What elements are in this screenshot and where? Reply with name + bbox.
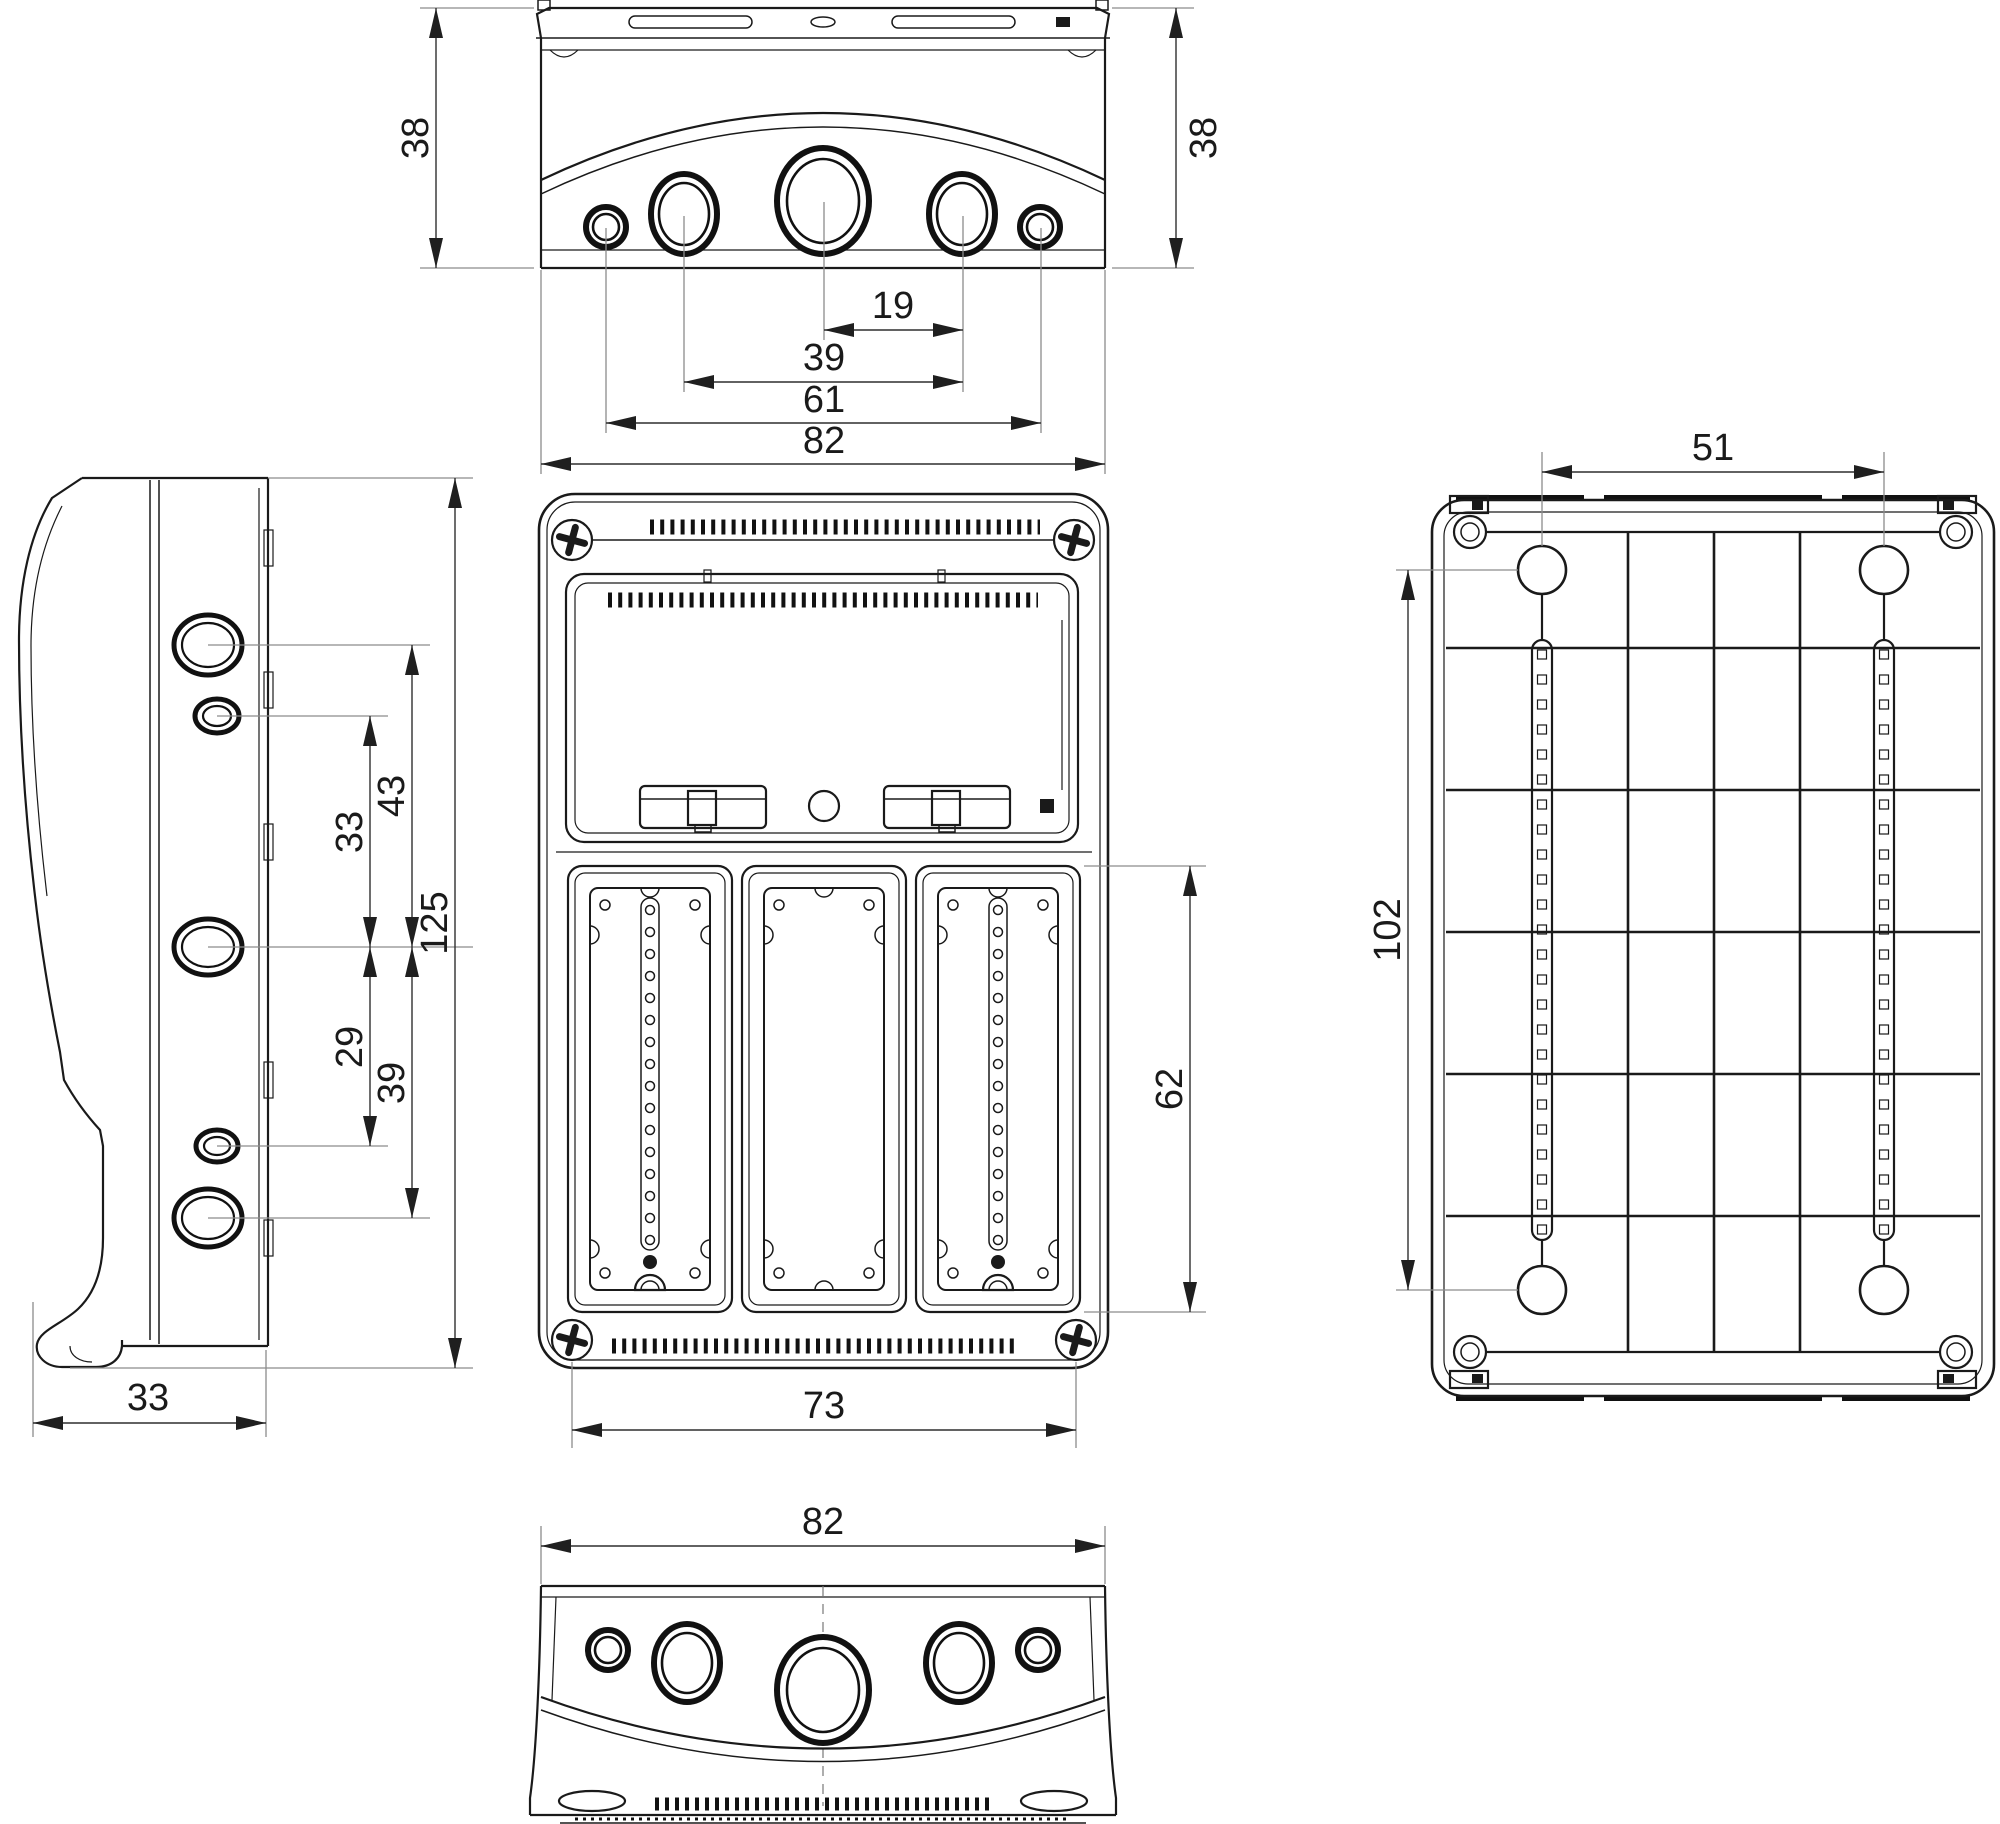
- knockout-large-center: [777, 1637, 869, 1743]
- side-knockouts: [174, 615, 242, 1247]
- corner-fixing-top-left: [1450, 496, 1488, 548]
- dim-label: 39: [371, 1062, 413, 1104]
- dim-label: 82: [803, 420, 845, 462]
- enclosure-dimension-drawing: 38 38 19 39: [0, 0, 2000, 1824]
- dim-top-height-right: 38: [1112, 8, 1225, 268]
- dim-label: 39: [803, 337, 845, 379]
- dim-label: 19: [872, 285, 914, 327]
- dim-label: 38: [1183, 117, 1225, 159]
- front-view: 62 73: [539, 494, 1206, 1448]
- front-view-body: [539, 494, 1108, 1368]
- mounting-grid: [1446, 532, 1980, 1352]
- back-view: 51 102: [1367, 427, 1994, 1398]
- technical-drawing-page: 38 38 19 39: [0, 0, 2000, 1824]
- latch-left: [640, 786, 766, 832]
- keyhole-chain-left: [1518, 546, 1566, 1314]
- dim-label: 62: [1149, 1068, 1191, 1110]
- lid-slot-left: [629, 16, 752, 28]
- cover-screw-bottom-right: [1056, 1320, 1096, 1360]
- knockout-large-center: [777, 148, 869, 254]
- dim-front-cutout-height: 62: [1084, 866, 1206, 1312]
- cover-screw-top-right: [1054, 520, 1094, 560]
- dim-back-hole-span-vertical: 102: [1367, 570, 1518, 1290]
- lid-latch-detail: [1056, 17, 1070, 27]
- din-chain-left: [635, 898, 665, 1290]
- dim-label: 43: [371, 775, 413, 817]
- dim-front-screw-span: 73: [572, 1362, 1076, 1448]
- dim-label: 82: [802, 1501, 844, 1543]
- din-chain-right: [983, 898, 1013, 1290]
- dim-bottom-width: 82: [541, 1501, 1105, 1584]
- top-view: 38 38 19 39: [395, 0, 1225, 474]
- cover-square-detail: [1040, 799, 1054, 813]
- lid-slot-right: [892, 16, 1015, 28]
- cover-hole: [809, 791, 839, 821]
- terminal-cover-window: [566, 574, 1078, 842]
- lid-oval-detail: [811, 17, 835, 27]
- corner-fixing-top-right: [1938, 496, 1976, 548]
- foot-right: [1021, 1791, 1087, 1811]
- foot-left: [559, 1791, 625, 1811]
- side-dimensions: 43 33 29 39 125: [33, 478, 473, 1437]
- dim-label: 33: [127, 1377, 169, 1419]
- knockout-medium-left: [654, 1624, 720, 1702]
- dim-back-hole-span-horizontal: 51: [1542, 427, 1884, 546]
- latch-right: [884, 786, 1010, 832]
- knockout-medium-right: [926, 1624, 992, 1702]
- dim-label: 102: [1367, 898, 1409, 961]
- dim-top-height-left: 38: [395, 8, 534, 268]
- dim-label: 33: [329, 811, 371, 853]
- dim-label: 29: [329, 1026, 371, 1068]
- dim-label: 73: [803, 1385, 845, 1427]
- bottom-view-body: [530, 1586, 1116, 1823]
- dim-label: 38: [395, 117, 437, 159]
- lid-profile: [19, 478, 122, 1367]
- knockout-medium-right: [929, 174, 995, 254]
- top-knockouts: [586, 148, 1060, 254]
- module-opening-center: [742, 866, 906, 1312]
- dim-label: 125: [414, 891, 456, 954]
- cover-screw-top-left: [552, 520, 592, 560]
- bottom-view: 82: [530, 1501, 1116, 1823]
- dim-label: 61: [803, 379, 845, 421]
- dim-label: 51: [1692, 427, 1734, 469]
- cover-screw-bottom-left: [552, 1320, 592, 1360]
- side-view: 43 33 29 39 125: [19, 478, 473, 1437]
- back-view-body: [1432, 496, 1994, 1398]
- keyhole-chain-right: [1860, 546, 1908, 1314]
